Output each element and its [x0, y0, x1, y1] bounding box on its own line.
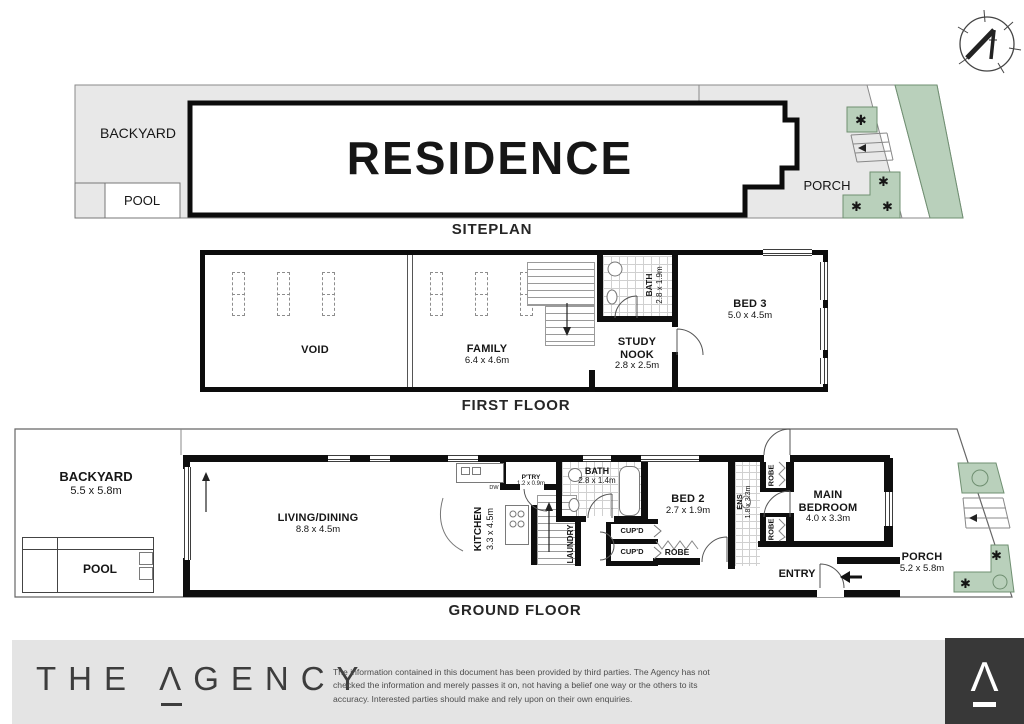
sink: [461, 467, 470, 475]
wall: [556, 457, 562, 520]
window: [763, 249, 812, 256]
pool-step: [139, 552, 153, 565]
room-name: LAUNDRY: [566, 509, 575, 579]
robe-label: ROBE: [652, 548, 702, 558]
window: [885, 492, 893, 526]
window: [820, 358, 828, 384]
room-name: BACKYARD: [36, 470, 156, 485]
room-name: FAMILY: [437, 343, 537, 356]
stairs-lower: [545, 306, 595, 346]
room-dims: 2.8 x 1.4m: [567, 476, 627, 485]
ens-label: ENS 1.8 x 3.3m: [736, 467, 760, 537]
room-dims: 2.8 x 2.5m: [592, 361, 682, 372]
pantry-label: P'TRY 1.2 x 0.9m: [506, 474, 556, 488]
room-name: P'TRY: [506, 474, 556, 481]
stairs-upper: [527, 262, 595, 306]
column-marker: [277, 272, 290, 316]
room-name: POOL: [60, 563, 140, 577]
room-name: ROBE: [652, 548, 702, 558]
residence-label: RESIDENCE: [347, 132, 633, 184]
room-name: VOID: [265, 344, 365, 357]
logo-mark-underscore: [973, 702, 996, 707]
wall: [884, 458, 893, 492]
bath-door-gap: [586, 516, 614, 522]
room-name: LIVING/DINING: [268, 512, 368, 525]
disclaimer-text: The information contained in this docume…: [333, 666, 733, 706]
backyard-label: BACKYARD: [100, 125, 176, 141]
pool-label: POOL: [60, 563, 140, 577]
bed3-label: BED 3 5.0 x 4.5m: [700, 298, 800, 322]
room-dims: 1.2 x 0.9m: [506, 481, 556, 488]
porch-label: PORCH: [804, 178, 851, 193]
backyard-label: BACKYARD 5.5 x 5.8m: [36, 470, 156, 498]
room-dims: 5.0 x 4.5m: [700, 311, 800, 322]
room-dims: 2.7 x 1.9m: [638, 506, 738, 517]
dw-label: DW: [487, 485, 501, 491]
wall: [606, 539, 658, 544]
room-name: KITCHEN: [473, 489, 485, 569]
wall: [589, 370, 595, 392]
main-bedroom-label: MAIN BEDROOM 4.0 x 3.3m: [778, 489, 878, 525]
room-dims: 6.4 x 4.6m: [437, 356, 537, 367]
first-floor-title: FIRST FLOOR: [416, 397, 616, 414]
wall: [760, 458, 766, 490]
porch-garden-top: [958, 463, 1004, 493]
robe-bottom-label: ROBE: [768, 505, 779, 555]
wall: [672, 250, 678, 327]
family-label: FAMILY 6.4 x 4.6m: [437, 343, 537, 367]
kitchen-label: KITCHEN 3.3 x 4.5m: [473, 489, 499, 569]
void-divider: [407, 255, 413, 387]
bed2-label: BED 2 2.7 x 1.9m: [638, 493, 738, 517]
room-dims: 1.8 x 3.3m: [745, 467, 753, 537]
ff-bath-label: BATH 2.8 x 1.9m: [645, 250, 671, 320]
window: [370, 455, 390, 462]
room-name: BED 2: [638, 493, 738, 506]
void-label: VOID: [265, 344, 365, 357]
room-name: ENS: [736, 467, 745, 537]
pool-label: POOL: [124, 193, 160, 208]
logo-mark-glyph: Λ: [970, 656, 998, 698]
window: [820, 308, 828, 350]
room-name: ENTRY: [757, 568, 837, 581]
pool-side-cell: [75, 183, 105, 218]
room-name: MAIN: [778, 489, 878, 502]
entry-label: ENTRY: [757, 568, 837, 581]
logo-a-glyph: Λ: [159, 660, 193, 698]
room-name: CUP'D: [607, 548, 657, 557]
column-marker: [475, 272, 488, 316]
room-dims: 8.8 x 4.5m: [268, 525, 368, 536]
room-name: BATH: [645, 250, 655, 320]
room-name: CUP'D: [607, 527, 657, 536]
plant-icon: ✱: [855, 112, 867, 128]
room-dims: 2.8 x 1.9m: [655, 250, 664, 320]
wall: [606, 561, 658, 566]
porch-label: PORCH 5.2 x 5.8m: [882, 551, 962, 575]
wall: [760, 515, 766, 543]
agency-logo-mark: Λ: [945, 638, 1024, 724]
fixture-label: DW: [487, 485, 501, 491]
wall: [653, 558, 700, 565]
floorplan-page: ✱ ✱ ✱ ✱ BACKYARD POOL RESIDENCE PORCH SI…: [0, 0, 1024, 724]
siteplan-title: SITEPLAN: [392, 221, 592, 238]
cooktop-bench: [505, 505, 529, 545]
room-dims: 3.3 x 4.5m: [485, 489, 495, 569]
column-marker: [322, 272, 335, 316]
sliding-door: [184, 467, 191, 560]
room-dims: 4.0 x 3.3m: [778, 514, 878, 525]
living-label: LIVING/DINING 8.8 x 4.5m: [268, 512, 368, 536]
plant-icon: ✱: [878, 174, 889, 189]
window: [328, 455, 350, 462]
plant-icon: ✱: [991, 548, 1002, 563]
window: [820, 262, 828, 300]
window: [448, 455, 478, 462]
cupd-label-2: CUP'D: [607, 548, 657, 557]
window: [641, 455, 699, 462]
room-name: STUDY: [592, 336, 682, 349]
column-marker: [232, 272, 245, 316]
pool-step: [139, 567, 153, 580]
plant-icon: ✱: [882, 199, 893, 214]
study-nook-label: STUDY NOOK 2.8 x 2.5m: [592, 336, 682, 372]
room-dims: 5.5 x 5.8m: [36, 485, 156, 498]
room-name: ROBE: [768, 505, 777, 555]
gf-bath-label: BATH 2.8 x 1.4m: [567, 466, 627, 486]
robe-top-label: ROBE: [768, 451, 779, 501]
room-name: ROBE: [768, 451, 777, 501]
wall: [183, 590, 900, 597]
plant-icon: ✱: [851, 199, 862, 214]
room-dims: 5.2 x 5.8m: [882, 564, 962, 575]
cupd-label-1: CUP'D: [607, 527, 657, 536]
agency-logo: THE ΛGENCY: [36, 660, 371, 698]
wall: [597, 250, 603, 320]
room-name: BED 3: [700, 298, 800, 311]
pool-divider: [57, 537, 58, 593]
laundry-label: LAUNDRY: [566, 509, 578, 579]
sink: [472, 467, 481, 475]
wall: [531, 505, 537, 565]
room-name: PORCH: [882, 551, 962, 564]
window: [583, 455, 611, 462]
wall: [183, 558, 190, 597]
ground-floor-title: GROUND FLOOR: [415, 602, 615, 619]
plant-icon: ✱: [960, 576, 971, 591]
siteplan-drawing: ✱ ✱ ✱ ✱ BACKYARD POOL RESIDENCE PORCH: [0, 80, 1024, 242]
room-name: BATH: [567, 466, 627, 476]
pool-coping: [22, 549, 154, 550]
logo-text-the: THE: [36, 660, 138, 697]
column-marker: [430, 272, 443, 316]
wall: [786, 458, 794, 492]
north-arrow-icon: [958, 10, 1021, 73]
entry-door-gap: [817, 590, 844, 597]
